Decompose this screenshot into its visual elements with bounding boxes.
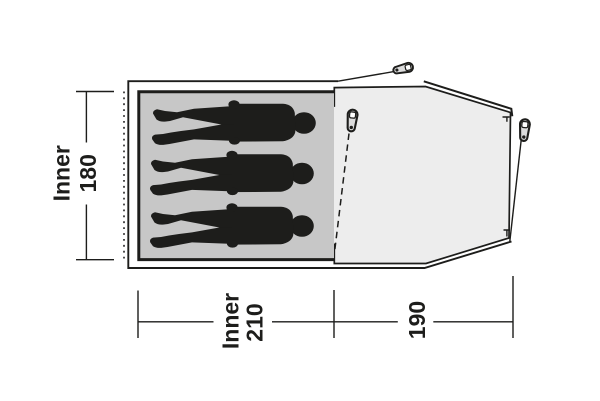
- svg-text:190: 190: [404, 301, 430, 339]
- svg-text:180: 180: [75, 154, 101, 192]
- svg-text:210: 210: [242, 303, 268, 341]
- svg-text:Inner: Inner: [218, 293, 244, 349]
- svg-text:Inner: Inner: [49, 145, 75, 201]
